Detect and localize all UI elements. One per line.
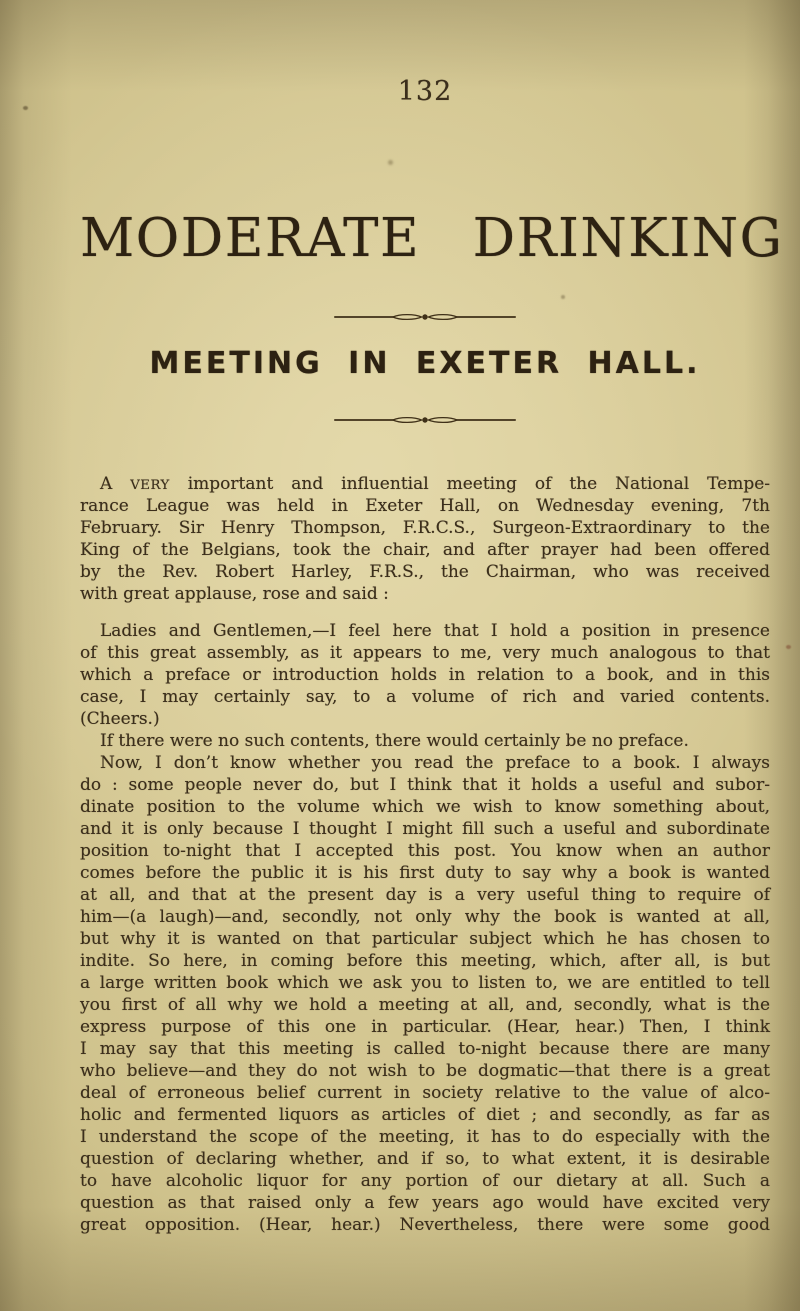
spindle-rule-icon [334,311,516,323]
ornament-divider-top [334,308,516,320]
text-line: with great applause, rose and said : [80,583,770,605]
text-line: you first of all why we hold a meeting a… [80,994,770,1016]
text-line: him—(a laugh)—and, secondly, not only wh… [80,906,770,928]
body-text: A VERY important and influential meeting… [80,473,770,1236]
ornament-divider-bottom [334,411,516,423]
text-line: case, I may certainly say, to a volume o… [80,686,770,708]
text-line: A VERY important and influential meeting… [80,473,770,495]
paper-speck [561,295,565,299]
text-line: of this great assembly, as it appears to… [80,642,770,664]
page-number: 132 [80,78,770,105]
paragraph: If there were no such contents, there wo… [80,730,770,752]
text-line: Now, I don’t know whether you read the p… [80,752,770,774]
text-line: question as that raised only a few years… [80,1192,770,1214]
text-line: February. Sir Henry Thompson, F.R.C.S., … [80,517,770,539]
text-line: question of declaring whether, and if so… [80,1148,770,1170]
paper-speck [23,106,28,110]
text-line: I understand the scope of the meeting, i… [80,1126,770,1148]
section-heading: MEETING IN EXETER HALL. [80,349,770,379]
chapter-title: MODERATE DRINKING [80,212,770,265]
text-line: King of the Belgians, took the chair, an… [80,539,770,561]
text-line: comes before the public it is his first … [80,862,770,884]
paragraph: Ladies and Gentlemen,—I feel here that I… [80,620,770,730]
paragraph: Now, I don’t know whether you read the p… [80,752,770,1236]
text-line: Ladies and Gentlemen,—I feel here that I… [80,620,770,642]
text-line: a large written book which we ask you to… [80,972,770,994]
paper-speck [388,160,393,165]
text-line: deal of erroneous belief current in soci… [80,1082,770,1104]
text-line: but why it is wanted on that particular … [80,928,770,950]
text-line: who believe—and they do not wish to be d… [80,1060,770,1082]
text-line: express purpose of this one in particula… [80,1016,770,1038]
text-line: and it is only because I thought I might… [80,818,770,840]
text-line: indite. So here, in coming before this m… [80,950,770,972]
text-line: I may say that this meeting is called to… [80,1038,770,1060]
text-line: holic and fermented liquors as articles … [80,1104,770,1126]
text-line: (Cheers.) [80,708,770,730]
paper-speck [786,645,791,649]
text-line: position to-night that I accepted this p… [80,840,770,862]
text-line: which a preface or introduction holds in… [80,664,770,686]
text-line: great opposition. (Hear, hear.) Neverthe… [80,1214,770,1236]
text-line: by the Rev. Robert Harley, F.R.S., the C… [80,561,770,583]
text-line: rance League was held in Exeter Hall, on… [80,495,770,517]
spindle-rule-icon [334,414,516,426]
book-page-scan: 132 MODERATE DRINKING MEETING IN EXETER … [0,0,800,1311]
text-line: If there were no such contents, there wo… [80,730,770,752]
text-line: at all, and that at the present day is a… [80,884,770,906]
paragraph: A VERY important and influential meeting… [80,473,770,605]
text-line: to have alcoholic liquor for any portion… [80,1170,770,1192]
text-line: do : some people never do, but I think t… [80,774,770,796]
text-line: dinate position to the volume which we w… [80,796,770,818]
